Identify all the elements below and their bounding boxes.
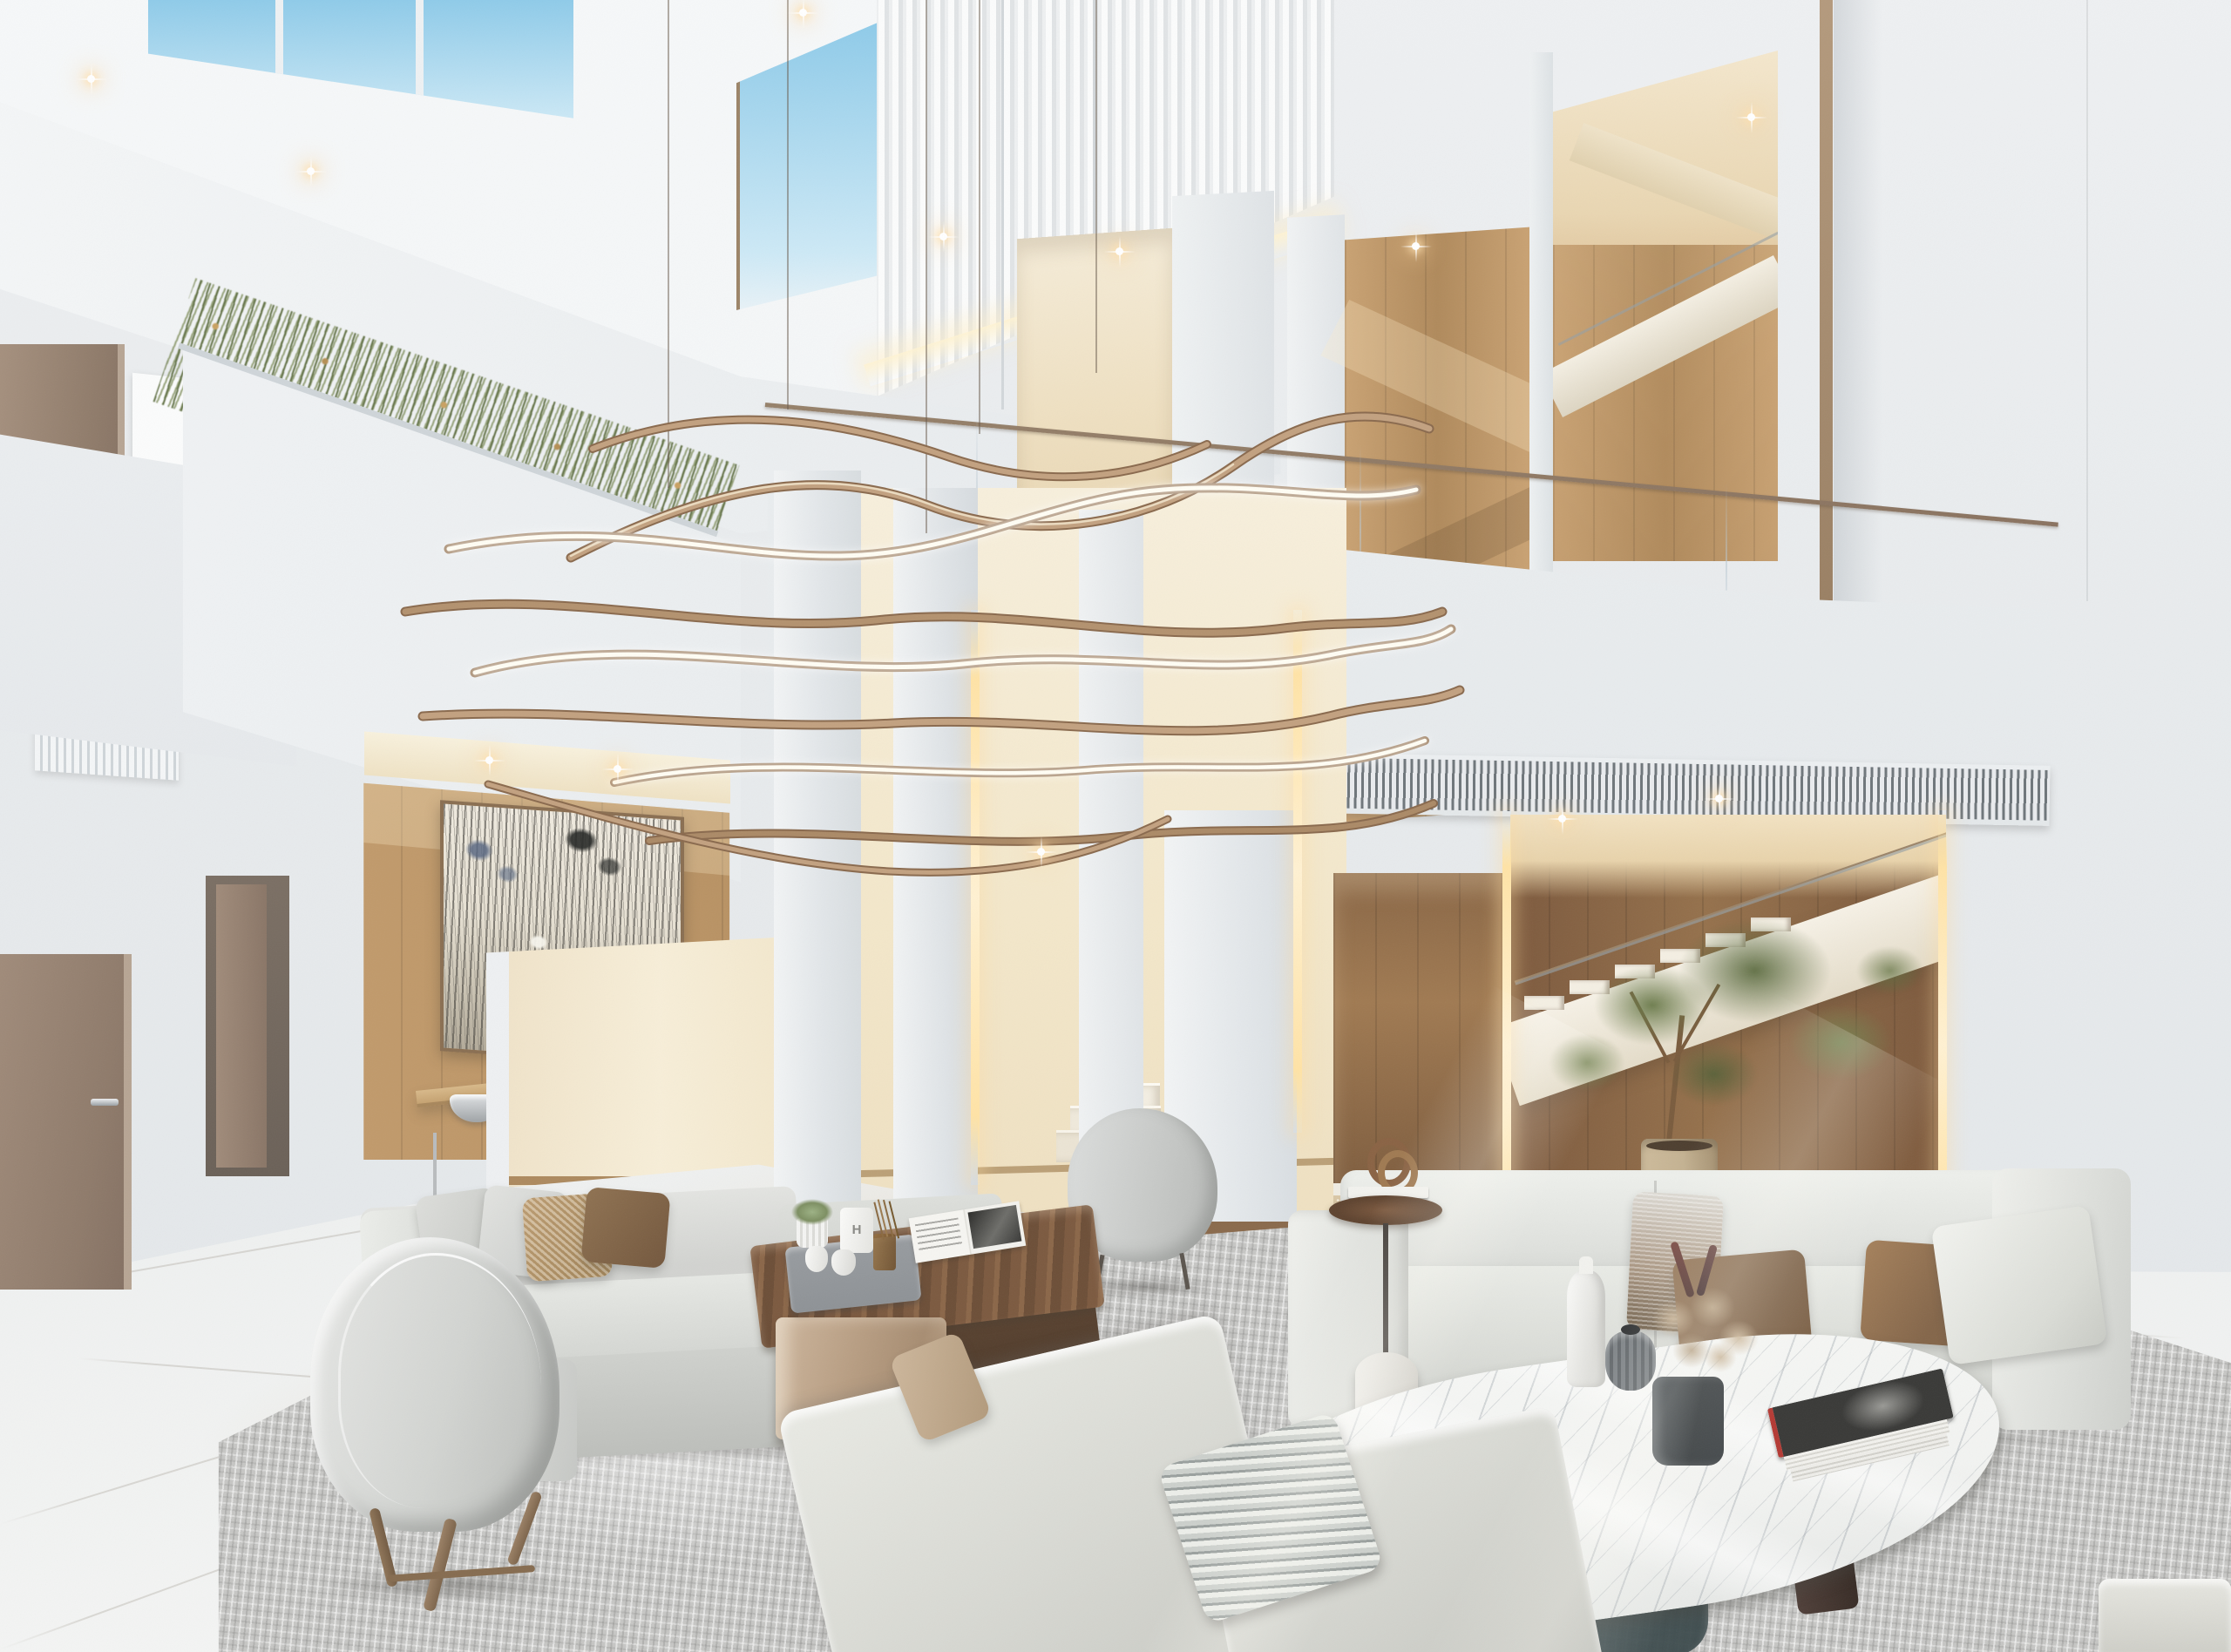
recessed-spotlight	[1715, 795, 1723, 802]
recessed-spotlight	[307, 167, 315, 175]
recessed-spotlight	[87, 75, 95, 83]
h-canister: H	[840, 1208, 873, 1253]
mini-vase	[805, 1246, 828, 1272]
recessed-spotlight	[1037, 848, 1045, 856]
door-handle	[91, 1099, 119, 1106]
recessed-spotlight	[799, 9, 807, 17]
recessed-spotlight	[1412, 242, 1420, 250]
magazine-photo	[968, 1205, 1022, 1249]
recessed-spotlight	[939, 233, 947, 240]
canister-monogram: H	[852, 1222, 862, 1237]
wingback-armchair	[303, 1237, 582, 1612]
succulent-plant	[791, 1199, 833, 1225]
corridor-opening	[206, 876, 289, 1176]
interior-render: LATIN	[0, 0, 2231, 1652]
dark-brown-pillow	[580, 1187, 670, 1269]
recessed-spotlight	[614, 765, 621, 773]
wave-chandelier	[349, 296, 1473, 897]
mini-vase	[831, 1249, 856, 1276]
recessed-spotlight	[1115, 247, 1123, 255]
reed-diffuser	[873, 1234, 896, 1270]
corridor-door	[216, 884, 267, 1168]
side-table-top	[1329, 1195, 1442, 1225]
recessed-spotlight	[1558, 815, 1566, 823]
upper-stair-window	[1553, 51, 1778, 561]
left-hallway	[486, 938, 776, 1192]
magazine-textlines	[915, 1217, 963, 1253]
recessed-spotlight	[1747, 113, 1755, 121]
wall-seam	[2086, 0, 2088, 601]
lower-door	[0, 954, 132, 1290]
corner-ottoman	[2099, 1579, 2231, 1652]
upper-stair-flight	[1570, 123, 1804, 245]
bottle-vase	[1567, 1270, 1605, 1387]
hallway-jamb	[486, 938, 509, 1192]
bottle-neck	[1579, 1256, 1593, 1274]
pampas-vase	[1652, 1377, 1724, 1466]
knot-sculpture	[1367, 1138, 1407, 1188]
recessed-spotlight	[485, 756, 493, 764]
